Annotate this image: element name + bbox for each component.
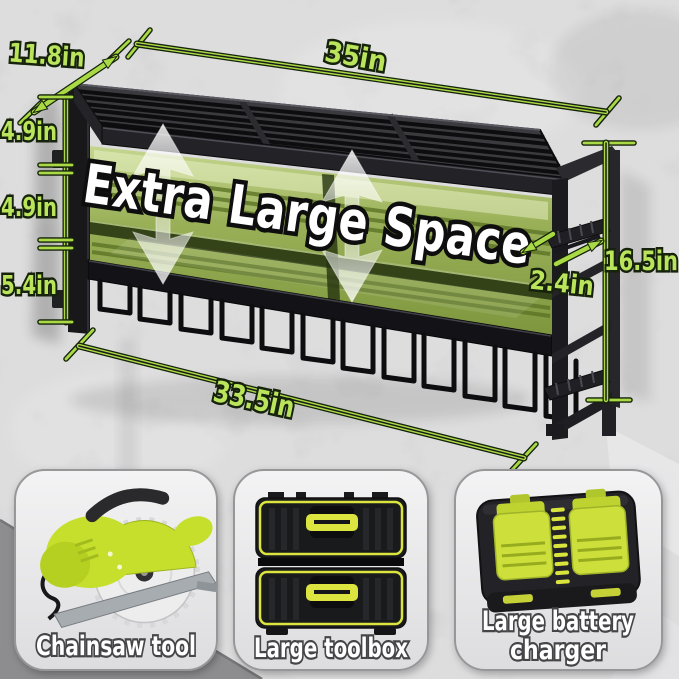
dual-battery-charger-image [476, 487, 642, 614]
dim-label-section-1: 4.9in [1, 117, 57, 147]
dim-label-height-right: 16.5in [604, 246, 678, 277]
card-label: charger [510, 635, 607, 666]
product-cards: Chainsaw tool [15, 470, 662, 670]
dim-label-section-3: 5.4in [1, 271, 57, 301]
chainsaw-tool-card: Chainsaw tool [15, 470, 225, 670]
dim-label-section-2: 4.9in [1, 193, 57, 223]
large-toolbox-card: Large toolbox [234, 470, 428, 670]
card-label: Chainsaw tool [36, 631, 196, 662]
diagram-canvas: Extra Large Space 11.8in 35in 4.9in 4.9i… [0, 0, 679, 679]
battery-pack [492, 493, 554, 581]
battery-charger-card: Large battery charger [455, 470, 662, 670]
card-label: Large toolbox [254, 633, 408, 664]
battery-pack [568, 487, 630, 575]
product-diagram-image: Extra Large Space 11.8in 35in 4.9in 4.9i… [0, 0, 679, 679]
card-label: Large battery [482, 606, 634, 637]
two-drawer-toolbox-image [256, 492, 406, 635]
dim-label-depth: 11.8in [8, 38, 86, 73]
